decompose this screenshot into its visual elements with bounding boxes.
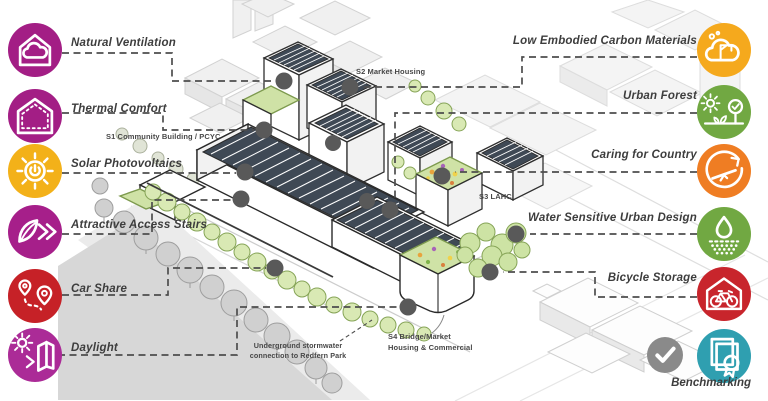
feature-thermal-comfort: Thermal Comfort — [8, 89, 167, 143]
label-s4-bridge-market: S4 Bridge/Market Housing & Commercial — [388, 332, 473, 353]
label-low-embodied-carbon: Low Embodied Carbon Materials — [513, 35, 697, 47]
checkmark-icon — [647, 337, 683, 373]
feature-attractive-access-stairs: Attractive Access Stairs — [8, 205, 207, 259]
label-urban-forest: Urban Forest — [623, 90, 697, 102]
label-car-share: Car Share — [71, 283, 127, 295]
feature-low-embodied-carbon — [697, 23, 751, 77]
feature-urban-forest — [697, 85, 751, 139]
sun-power-icon — [8, 144, 62, 198]
cycle-balance-icon — [697, 144, 751, 198]
label-solar-photovoltaics: Solar Photovoltaics — [71, 158, 182, 170]
feature-caring-for-country — [697, 144, 751, 198]
feature-bicycle-storage — [697, 267, 751, 321]
feature-solar-photovoltaics: Solar Photovoltaics — [8, 144, 182, 198]
label-bicycle-storage: Bicycle Storage — [608, 272, 697, 284]
feature-car-share: Car Share — [8, 269, 127, 323]
sun-building-icon — [8, 328, 62, 382]
house-cloud-icon — [8, 23, 62, 77]
label-thermal-comfort: Thermal Comfort — [71, 103, 167, 115]
feature-natural-ventilation: Natural Ventilation — [8, 23, 176, 77]
cloud-crane-icon — [697, 23, 751, 77]
label-natural-ventilation: Natural Ventilation — [71, 37, 176, 49]
label-daylight: Daylight — [71, 342, 118, 354]
leaf-chevrons-icon — [8, 205, 62, 259]
label-benchmarking: Benchmarking — [671, 377, 751, 389]
label-s2-market-housing: S2 Market Housing — [356, 67, 425, 78]
feature-daylight: Daylight — [8, 328, 118, 382]
label-caring-for-country: Caring for Country — [591, 149, 697, 161]
sun-tree-icon — [697, 85, 751, 139]
feature-benchmarking — [697, 329, 751, 383]
label-water-sensitive-urban-design: Water Sensitive Urban Design — [528, 212, 697, 224]
sustainability-diagram: S1 Community Building / PCYC S2 Market H… — [0, 0, 768, 401]
feature-water-sensitive-urban-design — [697, 207, 751, 261]
certificate-icon — [697, 329, 751, 383]
s4-pointer-line — [432, 315, 444, 333]
label-stormwater-note: Underground stormwater connection to Red… — [248, 341, 348, 361]
map-pins-route-icon — [8, 269, 62, 323]
label-attractive-access-stairs: Attractive Access Stairs — [71, 219, 207, 231]
insulated-house-icon — [8, 89, 62, 143]
label-s3-lahc: S3 LAHC — [479, 192, 512, 203]
droplet-infiltration-icon — [697, 207, 751, 261]
bicycle-shed-icon — [697, 267, 751, 321]
